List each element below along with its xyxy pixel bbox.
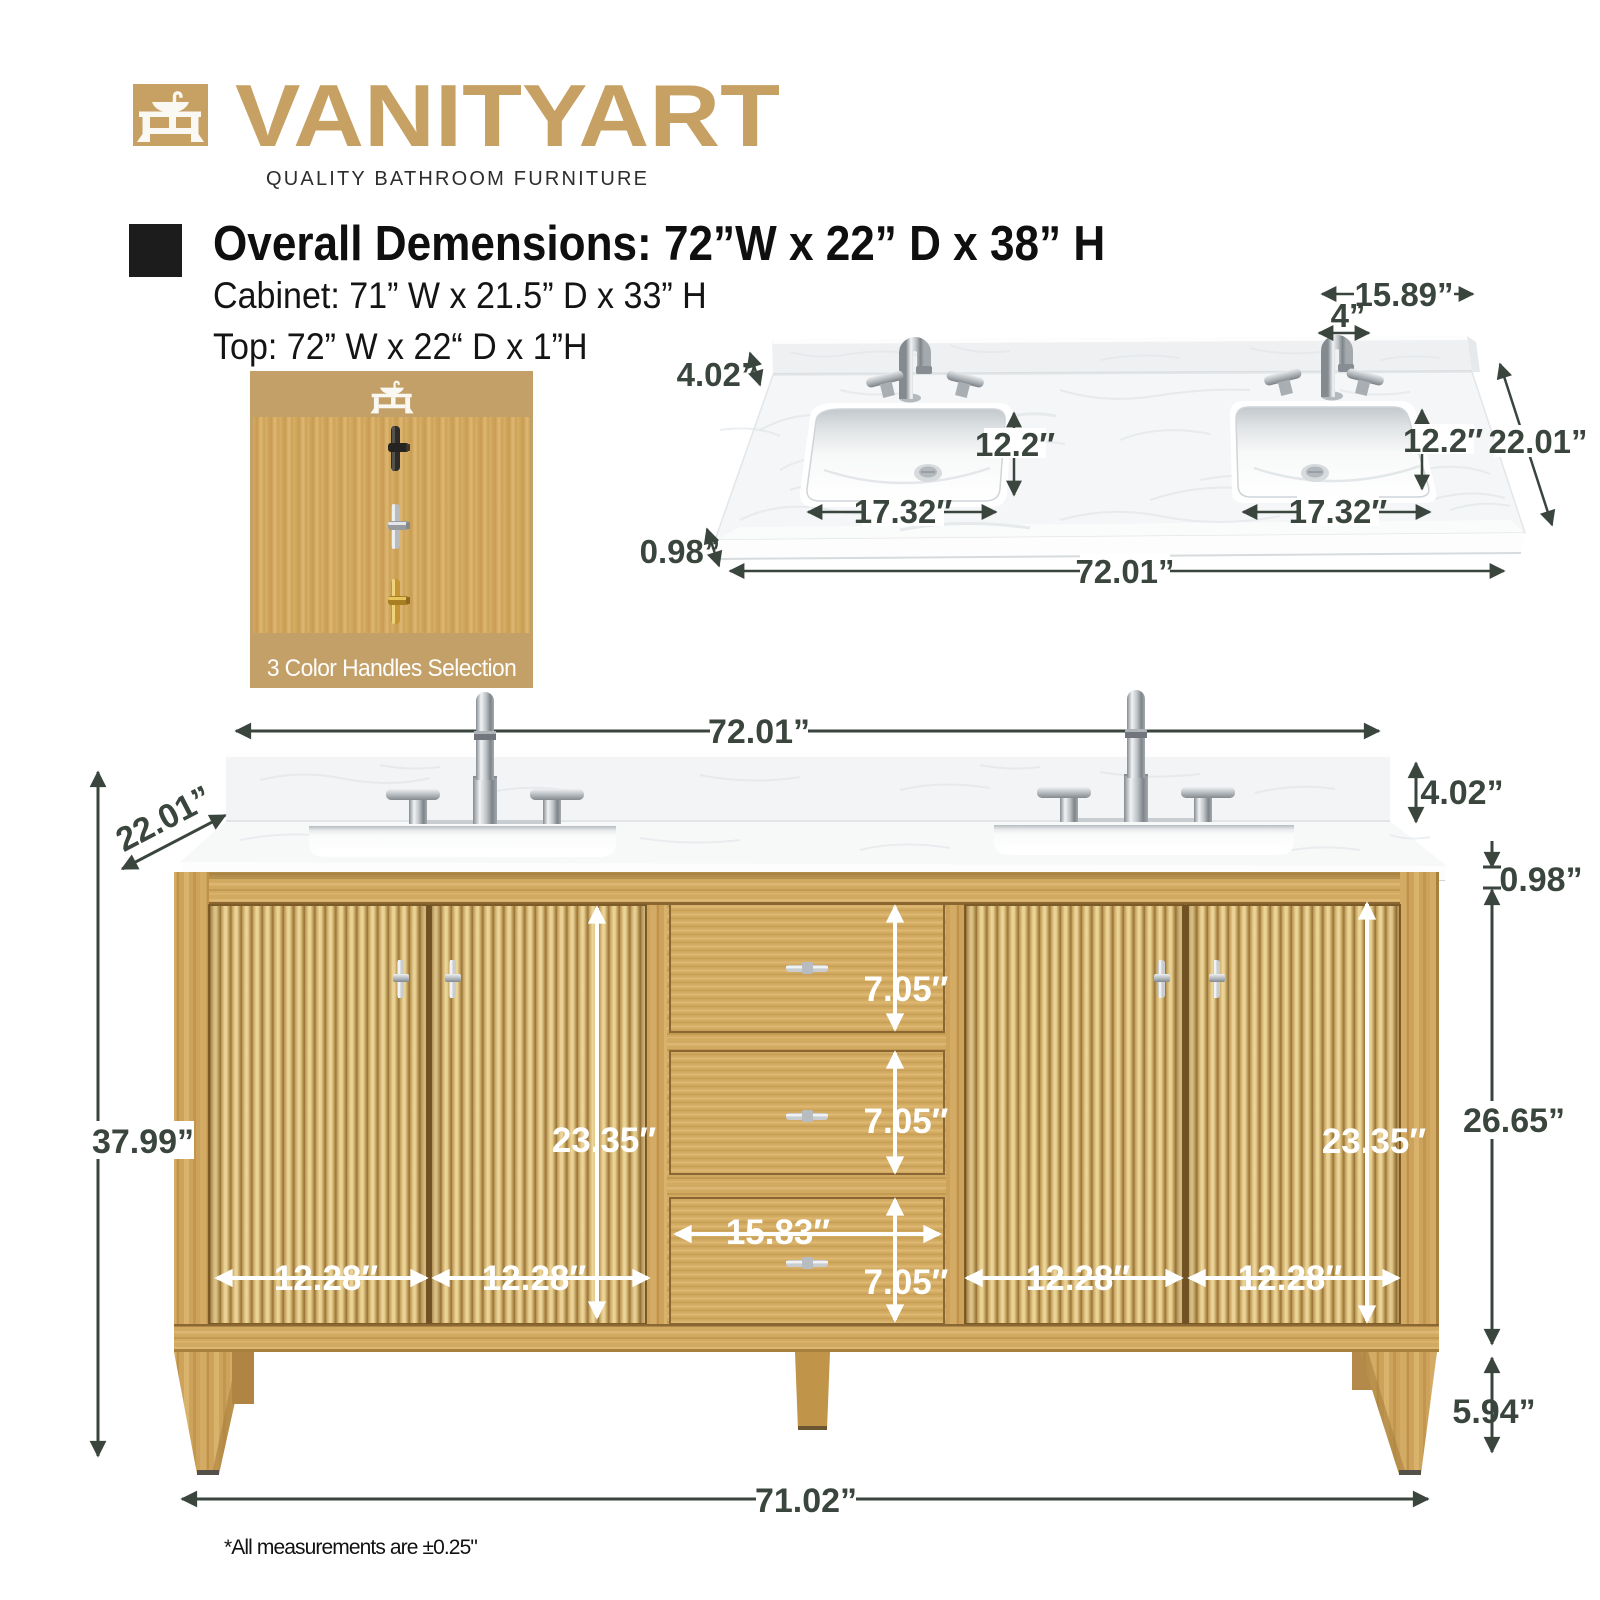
svg-text:0.98”: 0.98” [640, 533, 721, 570]
svg-text:0.98”: 0.98” [1499, 861, 1582, 899]
svg-text:7.05″: 7.05″ [864, 970, 949, 1009]
svg-text:26.65”: 26.65” [1463, 1102, 1565, 1140]
svg-text:22.01”: 22.01” [1488, 423, 1587, 460]
svg-text:7.05″: 7.05″ [864, 1263, 949, 1302]
svg-text:23.35″: 23.35″ [1322, 1122, 1427, 1161]
svg-text:37.99”: 37.99” [92, 1123, 194, 1161]
svg-text:5.94”: 5.94” [1452, 1393, 1535, 1431]
svg-text:72.01”: 72.01” [1075, 553, 1174, 590]
svg-text:71.02”: 71.02” [755, 1482, 857, 1520]
svg-text:15.89”: 15.89” [1354, 276, 1453, 313]
svg-text:12.28″: 12.28″ [482, 1259, 587, 1298]
svg-text:23.35″: 23.35″ [552, 1121, 657, 1160]
svg-text:15.83″: 15.83″ [726, 1213, 831, 1252]
svg-text:4.02”: 4.02” [1420, 774, 1503, 812]
svg-text:12.2″: 12.2″ [975, 426, 1055, 463]
svg-text:VANITYART: VANITYART [235, 74, 780, 159]
svg-text:72.01”: 72.01” [708, 713, 810, 751]
svg-text:4”: 4” [1331, 297, 1366, 334]
svg-text:7.05″: 7.05″ [864, 1102, 949, 1141]
svg-text:12.28″: 12.28″ [1026, 1259, 1131, 1298]
svg-text:12.2″: 12.2″ [1403, 422, 1483, 459]
svg-text:17.32″: 17.32″ [1289, 493, 1388, 530]
svg-text:4.02”: 4.02” [677, 356, 758, 393]
svg-text:17.32″: 17.32″ [854, 493, 953, 530]
svg-text:12.28″: 12.28″ [274, 1259, 379, 1298]
svg-text:12.28″: 12.28″ [1238, 1259, 1343, 1298]
